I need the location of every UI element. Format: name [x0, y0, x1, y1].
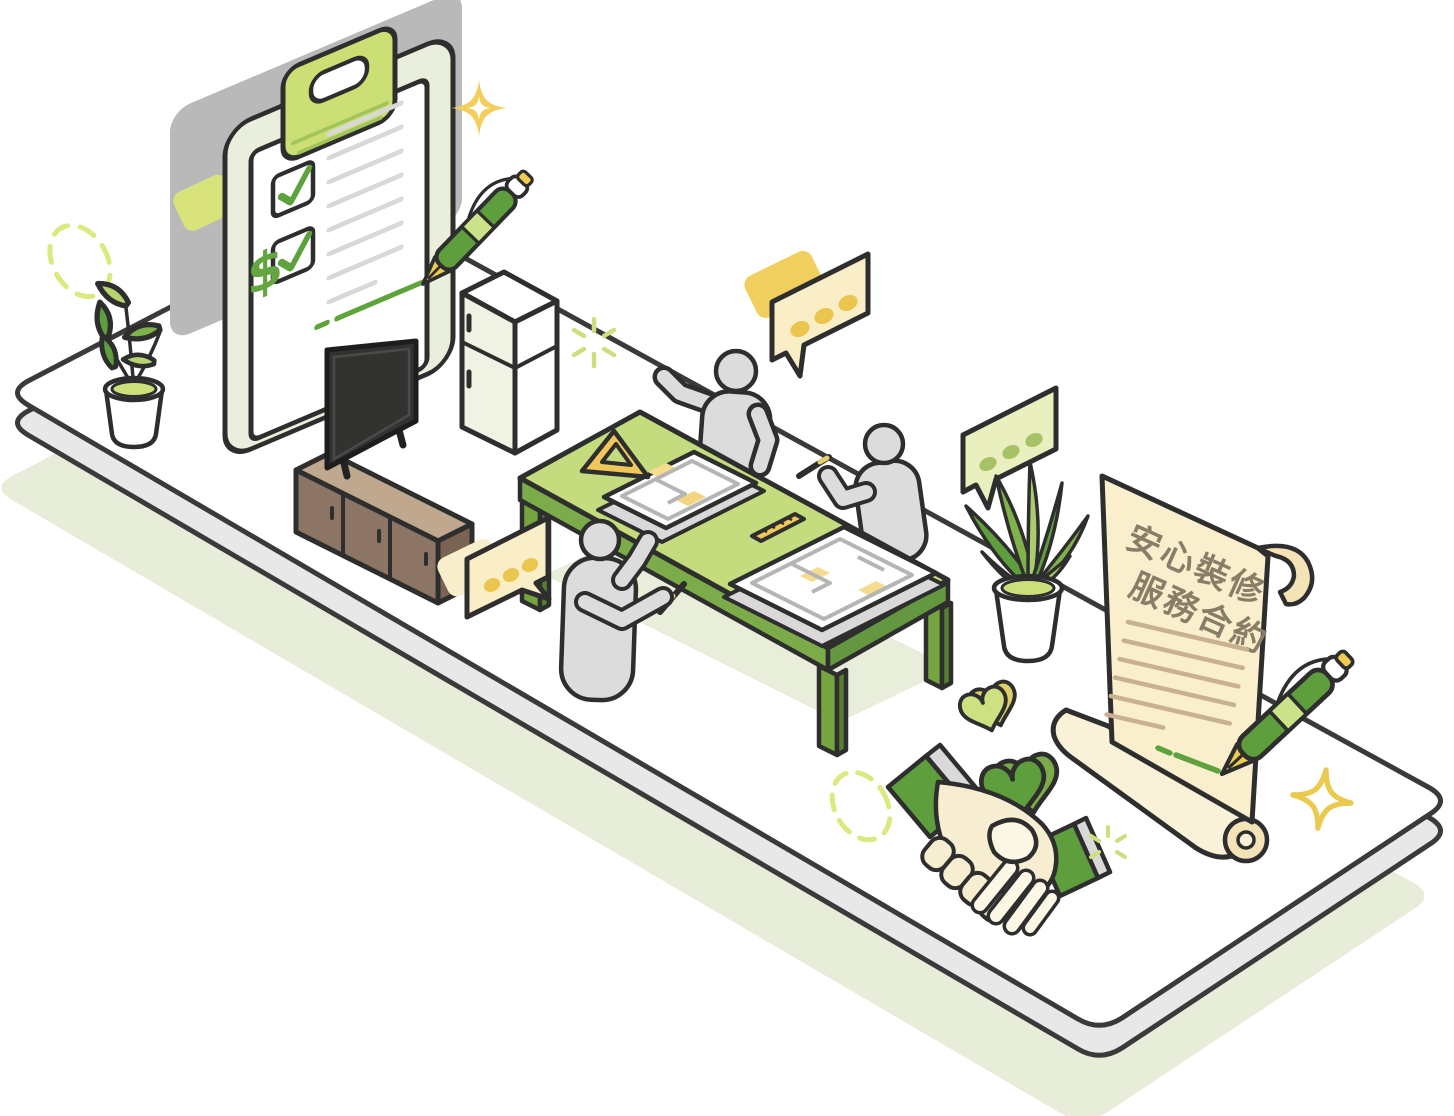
speech-bubble-right — [963, 388, 1056, 508]
isometric-scene: $ — [0, 0, 1454, 1116]
illustration-stage: $ — [0, 0, 1454, 1116]
person-head — [581, 521, 619, 559]
person-head — [716, 351, 756, 391]
refrigerator — [462, 272, 557, 453]
speech-bubble-top — [741, 248, 868, 376]
person-head — [865, 425, 903, 463]
hand-thumb — [989, 820, 1036, 862]
